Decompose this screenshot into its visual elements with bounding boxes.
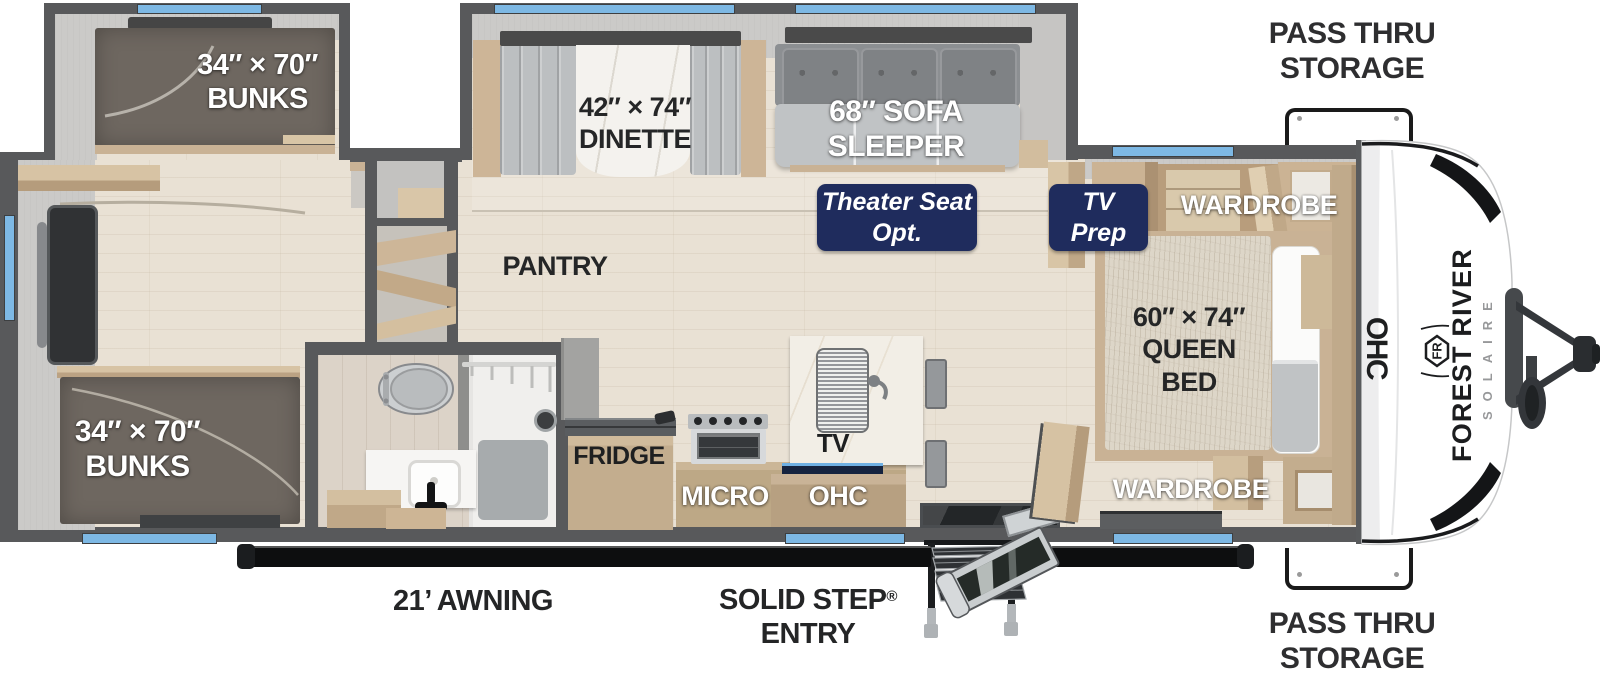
svg-text:FOREST RIVER: FOREST RIVER: [1447, 248, 1477, 462]
svg-text:FR: FR: [1430, 342, 1445, 360]
svg-text:SOLAIRE: SOLAIRE: [1480, 292, 1495, 420]
